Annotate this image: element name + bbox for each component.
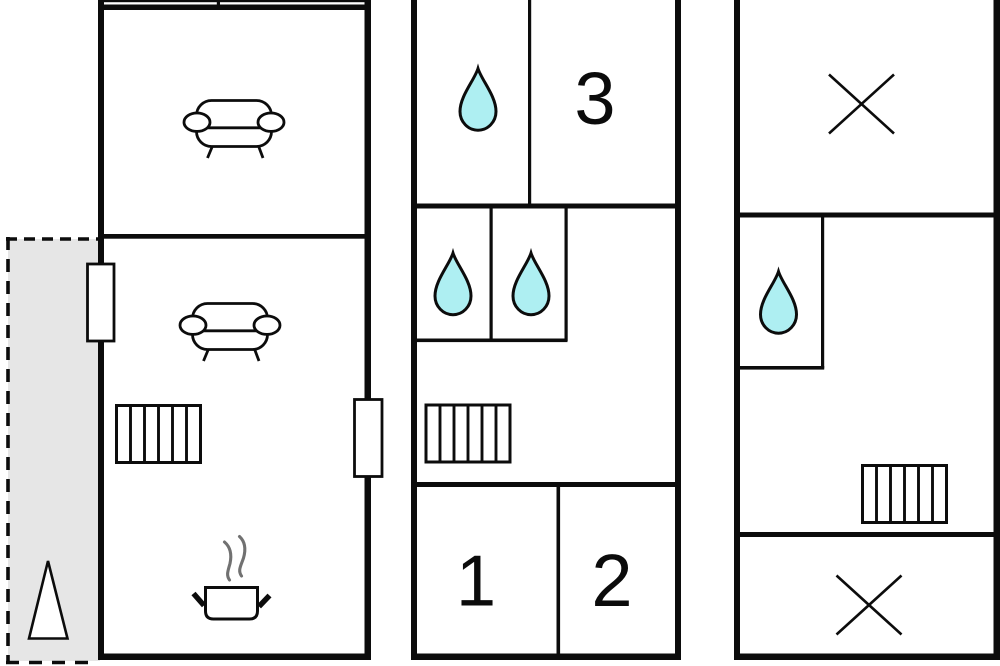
svg-text:3: 3	[574, 57, 615, 140]
svg-text:1: 1	[456, 542, 496, 622]
svg-text:2: 2	[591, 539, 632, 622]
